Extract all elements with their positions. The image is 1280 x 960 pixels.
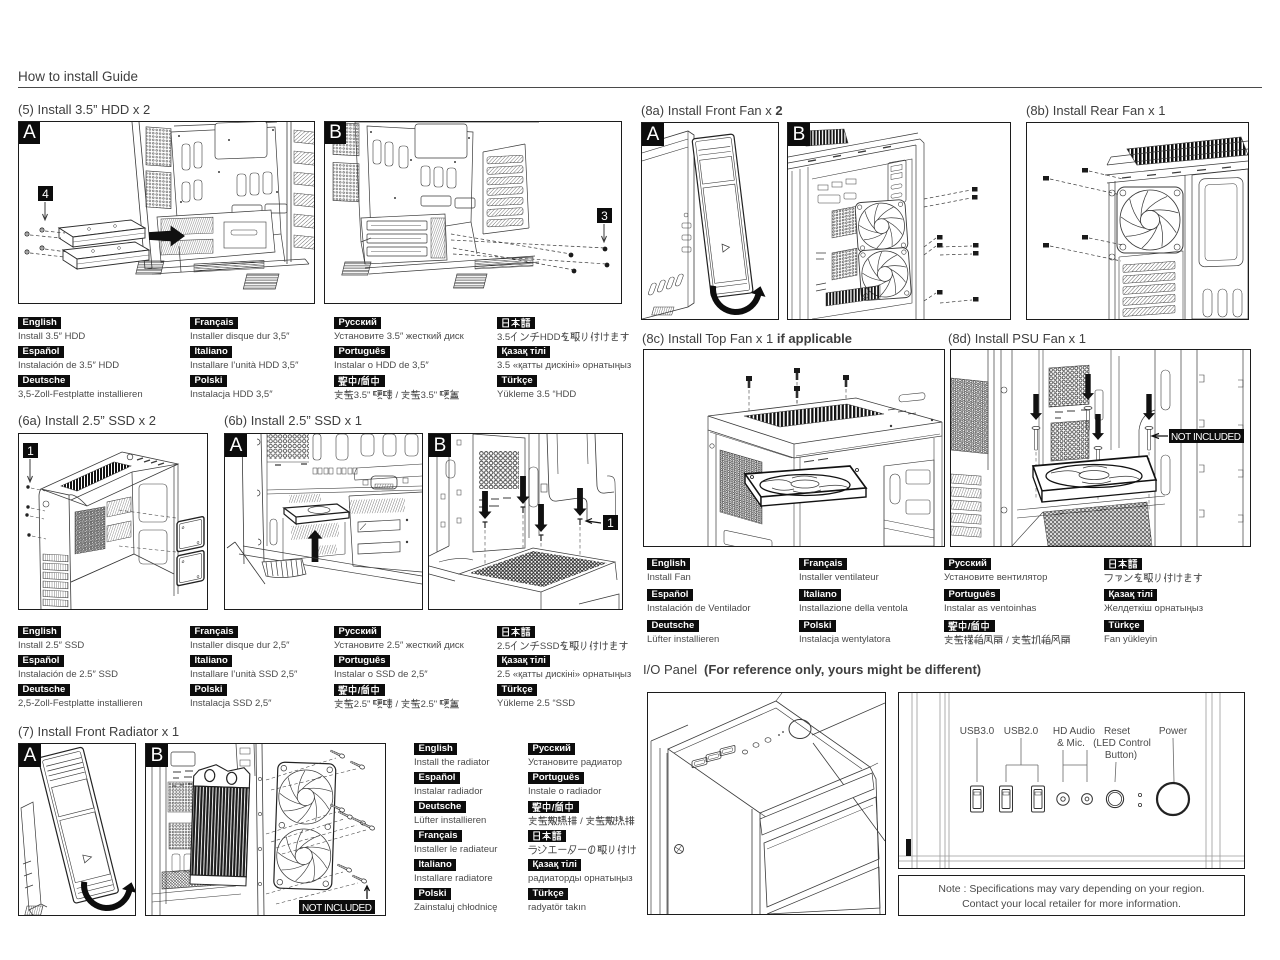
svg-text:(LED Control: (LED Control [1093,738,1151,749]
svg-text:& Mic.: & Mic. [1057,738,1085,749]
svg-text:B: B [434,435,447,456]
svg-text:/: / [578,816,586,827]
svg-text:B: B [151,745,164,766]
svg-text:USB2.0: USB2.0 [1004,726,1039,737]
svg-text:2.5": 2.5" [354,699,373,710]
svg-text:B: B [793,124,806,145]
svg-text:3.5": 3.5" [354,390,373,401]
svg-text:A: A [24,745,37,766]
svg-text:/: / [968,621,971,632]
svg-text:NOT INCLUDED: NOT INCLUDED [302,903,372,914]
svg-text:2.5: 2.5 [497,641,510,652]
svg-text:/: / [552,802,555,813]
svg-text:3.5: 3.5 [497,332,510,343]
svg-text:Button): Button) [1105,750,1137,761]
svg-text:4: 4 [42,187,49,201]
svg-text:SSD: SSD [540,641,560,652]
svg-text:B: B [329,122,342,143]
svg-text:A: A [647,124,660,145]
svg-text:/: / [358,685,361,696]
svg-text:1: 1 [27,444,34,458]
svg-text:3.5": 3.5" [421,390,440,401]
svg-text:A: A [23,122,36,143]
svg-text:2.5": 2.5" [421,699,440,710]
svg-text:1: 1 [607,516,614,530]
svg-text:A: A [230,435,243,456]
svg-text:/: / [393,390,401,401]
svg-text:Power: Power [1159,726,1188,737]
svg-text:HDD: HDD [540,332,561,343]
svg-text:/: / [393,699,401,710]
svg-text:/: / [358,376,361,387]
svg-text:/: / [1004,635,1012,646]
svg-text:3: 3 [601,209,608,223]
svg-text:Reset: Reset [1104,726,1130,737]
svg-text:USB3.0: USB3.0 [960,726,995,737]
svg-text:NOT INCLUDED: NOT INCLUDED [1171,432,1241,443]
svg-text:HD Audio: HD Audio [1053,726,1096,737]
